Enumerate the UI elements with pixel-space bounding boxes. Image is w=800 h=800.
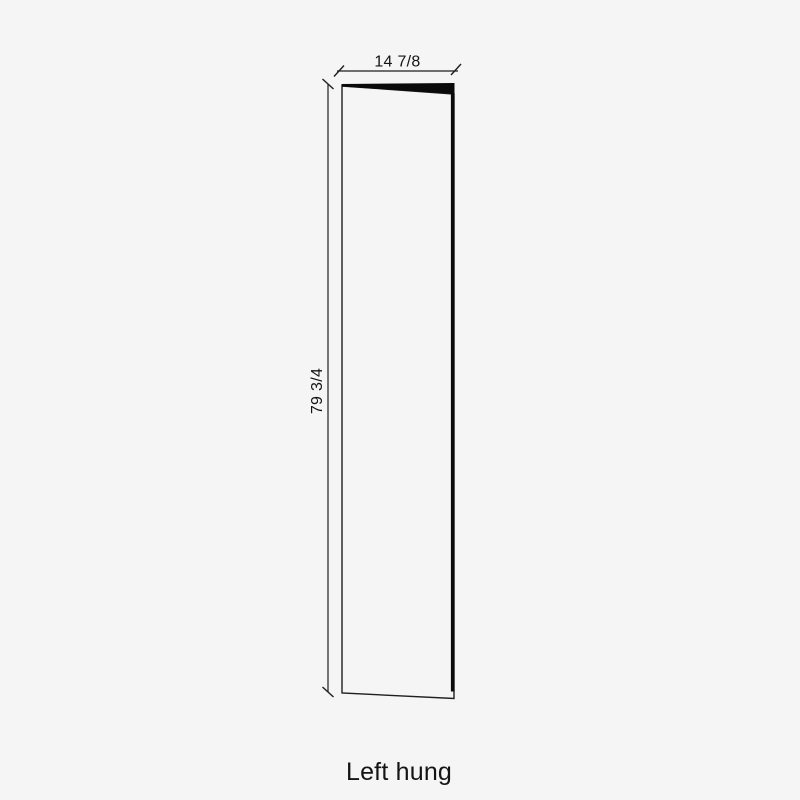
height-dimension: 79 3/4 (309, 79, 334, 697)
door (342, 83, 455, 699)
width-dimension-tick-right (451, 64, 461, 75)
width-dimension: 14 7/8 (334, 54, 461, 77)
hang-direction-label: Left hung (346, 758, 452, 786)
height-dimension-label: 79 3/4 (309, 368, 326, 414)
door-panel-face (342, 86, 454, 699)
door-diagram-canvas: 14 7/8 79 3/4 Left hung (0, 0, 800, 800)
door-diagram: 14 7/8 79 3/4 Left hung (0, 0, 800, 800)
door-top-edge-wedge (342, 83, 455, 94)
width-dimension-label: 14 7/8 (374, 54, 420, 71)
